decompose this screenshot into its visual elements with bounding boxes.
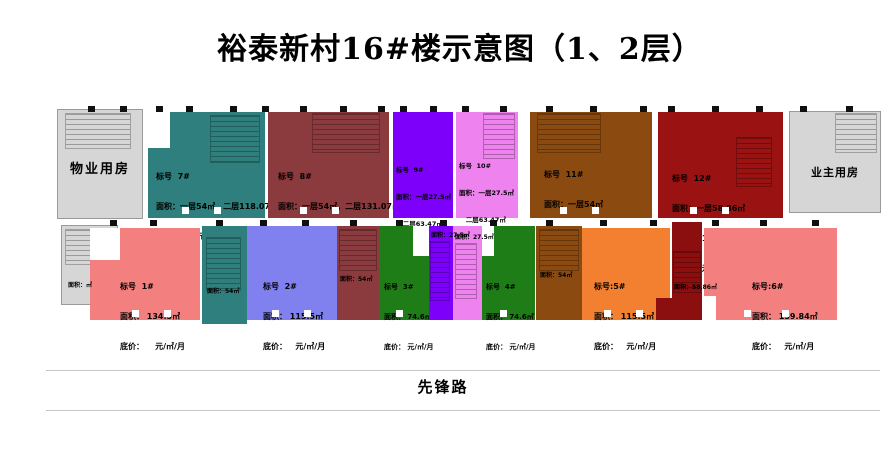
ground-block-10: 面积：27.5㎡: [453, 226, 482, 320]
unit-id-text: 标号 8#: [278, 172, 400, 182]
unit-block-10: 标号 10# 面积：一层27.5㎡ 二层63.47㎡ 底价： 元/㎡/月: [456, 112, 518, 218]
wall-tick: [546, 106, 553, 112]
wall-tick: [216, 220, 223, 226]
wall-notch: [148, 112, 170, 148]
property-room-block: 物业用房: [58, 110, 142, 218]
wall-tick: [712, 106, 719, 112]
stairs-hatch-icon: [207, 238, 240, 290]
stairs-hatch-icon: [836, 114, 876, 152]
door-tick: [722, 207, 729, 214]
unit-label: 标号:5# 面积： 115.5㎡ 底价： 元/㎡/月: [594, 262, 656, 372]
wall-tick: [350, 220, 357, 226]
unit-block-8: 标号 8# 面积：一层54㎡，二层131.07㎡ 底价： 元/㎡/月: [268, 112, 389, 218]
door-tick: [300, 207, 307, 214]
unit-area-text: 面积：一层58.86㎡: [672, 204, 745, 214]
wall-tick: [378, 106, 385, 112]
road-line-bottom: [46, 410, 880, 411]
stairs-hatch-icon: [456, 244, 476, 298]
wall-tick: [110, 220, 117, 226]
unit-area-text2: 二层63.47㎡: [459, 216, 514, 225]
ground-block-12-foot: [656, 298, 702, 320]
wall-notch: [90, 228, 120, 260]
unit-block-11: 标号 11# 面积：一层54㎡ 二层131.07㎡ 底价： 元/㎡/月: [530, 112, 652, 218]
unit-area-text: 面积：一层27.5㎡: [459, 189, 514, 198]
unit-label: 标号 2# 面积： 115.5㎡ 底价： 元/㎡/月: [263, 262, 325, 372]
wall-tick: [260, 220, 267, 226]
unit-id-text: 标号 12#: [672, 174, 745, 184]
owner-room-label: 业主用房: [790, 164, 880, 180]
unit-area-text: 面积：一层54㎡，二层131.07㎡: [278, 202, 400, 212]
wall-tick: [430, 106, 437, 112]
wall-tick: [302, 220, 309, 226]
wall-tick: [650, 220, 657, 226]
door-tick: [744, 310, 751, 317]
owner-room-block: 业主用房: [790, 112, 880, 212]
wall-tick: [462, 106, 469, 112]
wall-tick: [590, 106, 597, 112]
door-tick: [272, 310, 279, 317]
door-tick: [304, 310, 311, 317]
door-tick: [182, 207, 189, 214]
unit-price-text: 底价： 元/㎡/月: [752, 342, 818, 352]
wall-tick: [756, 106, 763, 112]
ground-area-text: 面积：54㎡: [540, 272, 572, 279]
road-line-top: [46, 370, 880, 371]
wall-tick: [156, 106, 163, 112]
wall-tick: [640, 106, 647, 112]
unit-label: 标号 3# 面积： 74.6㎡ 底价： 元/㎡/月: [384, 262, 434, 372]
wall-tick: [396, 220, 403, 226]
door-tick: [164, 310, 171, 317]
ground-block-8: 面积：54㎡: [337, 226, 379, 320]
ground-area-text: 面积：58.86㎡: [674, 284, 717, 291]
wall-tick: [440, 220, 447, 226]
unit-block-6: 标号:6# 面积： 159.84㎡ 底价： 元/㎡/月: [704, 228, 837, 320]
wall-tick: [120, 106, 127, 112]
ground-area-text: 面积：㎡: [68, 282, 92, 289]
wall-tick: [500, 106, 507, 112]
stairs-hatch-icon: [340, 230, 376, 270]
door-tick: [500, 310, 507, 317]
ground-block-9: 面积：27.5㎡: [429, 226, 453, 320]
wall-tick: [262, 106, 269, 112]
wall-tick: [230, 106, 237, 112]
wall-tick: [800, 106, 807, 112]
wall-notch: [482, 226, 494, 256]
property-room-label: 物业用房: [58, 158, 142, 177]
unit-label: 标号 1# 面积： 134.5㎡ 底价： 元/㎡/月: [120, 262, 185, 372]
unit-area-text: 面积：一层27.5㎡: [396, 193, 451, 202]
unit-id-text: 标号 4#: [486, 282, 536, 292]
stairs-hatch-icon: [313, 114, 379, 152]
wall-tick: [340, 106, 347, 112]
wall-tick: [186, 106, 193, 112]
wall-tick: [600, 220, 607, 226]
wall-tick: [150, 220, 157, 226]
unit-price-text: 底价： 元/㎡/月: [384, 342, 434, 352]
unit-block-1: 标号 1# 面积： 134.5㎡ 底价： 元/㎡/月: [90, 228, 200, 320]
unit-price-text: 底价： 元/㎡/月: [486, 342, 536, 352]
unit-id-text: 标号:6#: [752, 282, 818, 292]
door-tick: [560, 207, 567, 214]
door-tick: [690, 207, 697, 214]
wall-tick: [490, 220, 497, 226]
unit-id-text: 标号 10#: [459, 162, 514, 171]
unit-label: 标号 4# 面积： 74.6㎡ 底价： 元/㎡/月: [486, 262, 536, 372]
page-title: 裕泰新村16#楼示意图（1、2层）: [110, 24, 810, 68]
wall-tick: [846, 106, 853, 112]
ground-area-text: 面积：27.5㎡: [455, 234, 494, 241]
unit-price-text: 底价： 元/㎡/月: [263, 342, 325, 352]
ground-block-11: 面积：54㎡: [536, 226, 582, 320]
door-tick: [604, 310, 611, 317]
stairs-hatch-icon: [66, 114, 130, 148]
stairs-hatch-icon: [540, 230, 578, 270]
unit-area-text: 面积： 74.6㎡: [384, 312, 434, 322]
unit-id-text: 标号 3#: [384, 282, 434, 292]
unit-id-text: 标号 2#: [263, 282, 325, 292]
unit-block-7: 标号 7# 面积：一层54㎡，二层118.07㎡ 底价： 元/㎡/月: [148, 112, 265, 218]
unit-id-text: 标号 1#: [120, 282, 185, 292]
wall-tick: [400, 106, 407, 112]
unit-area-text: 面积： 74.6㎡: [486, 312, 536, 322]
door-tick: [782, 310, 789, 317]
unit-id-text: 标号 7#: [156, 172, 278, 182]
wall-tick: [668, 106, 675, 112]
door-tick: [214, 207, 221, 214]
unit-id-text: 标号:5#: [594, 282, 656, 292]
unit-block-9: 标号 9# 面积：一层27.5㎡ 二层63.47㎡ 底价： 元/㎡/月: [393, 112, 453, 218]
ground-area-text: 面积：54㎡: [207, 288, 239, 295]
floor-plan: 裕泰新村16#楼示意图（1、2层） 物业用房 标号 7# 面积：一层54㎡，二层…: [0, 0, 886, 451]
door-tick: [132, 310, 139, 317]
unit-block-12: 标号 12# 面积：一层58.86㎡ 二层118㎡ 底价： 元/㎡/月: [658, 112, 783, 218]
stairs-hatch-icon: [538, 114, 600, 152]
door-tick: [636, 310, 643, 317]
ground-block-7: 面积：54㎡: [202, 226, 247, 324]
road-label: 先锋路: [0, 376, 886, 397]
wall-tick: [760, 220, 767, 226]
unit-block-3: 标号 3# 面积： 74.6㎡ 底价： 元/㎡/月: [379, 226, 429, 320]
wall-notch: [704, 296, 716, 320]
unit-area-text: 面积： 134.5㎡: [120, 312, 185, 322]
ground-area-text: 面积：54㎡: [340, 276, 372, 283]
wall-notch: [413, 226, 429, 256]
unit-label: 标号:6# 面积： 159.84㎡ 底价： 元/㎡/月: [752, 262, 818, 372]
stairs-hatch-icon: [431, 242, 449, 300]
wall-tick: [712, 220, 719, 226]
unit-price-text: 底价： 元/㎡/月: [594, 342, 656, 352]
door-tick: [332, 207, 339, 214]
wall-tick: [88, 106, 95, 112]
door-tick: [396, 310, 403, 317]
wall-tick: [300, 106, 307, 112]
wall-tick: [812, 220, 819, 226]
unit-price-text: 底价： 元/㎡/月: [120, 342, 185, 352]
wall-tick: [546, 220, 553, 226]
unit-id-text: 标号 9#: [396, 166, 451, 175]
unit-id-text: 标号 11#: [544, 170, 607, 180]
door-tick: [592, 207, 599, 214]
unit-block-2: 标号 2# 面积： 115.5㎡ 底价： 元/㎡/月: [247, 226, 337, 320]
